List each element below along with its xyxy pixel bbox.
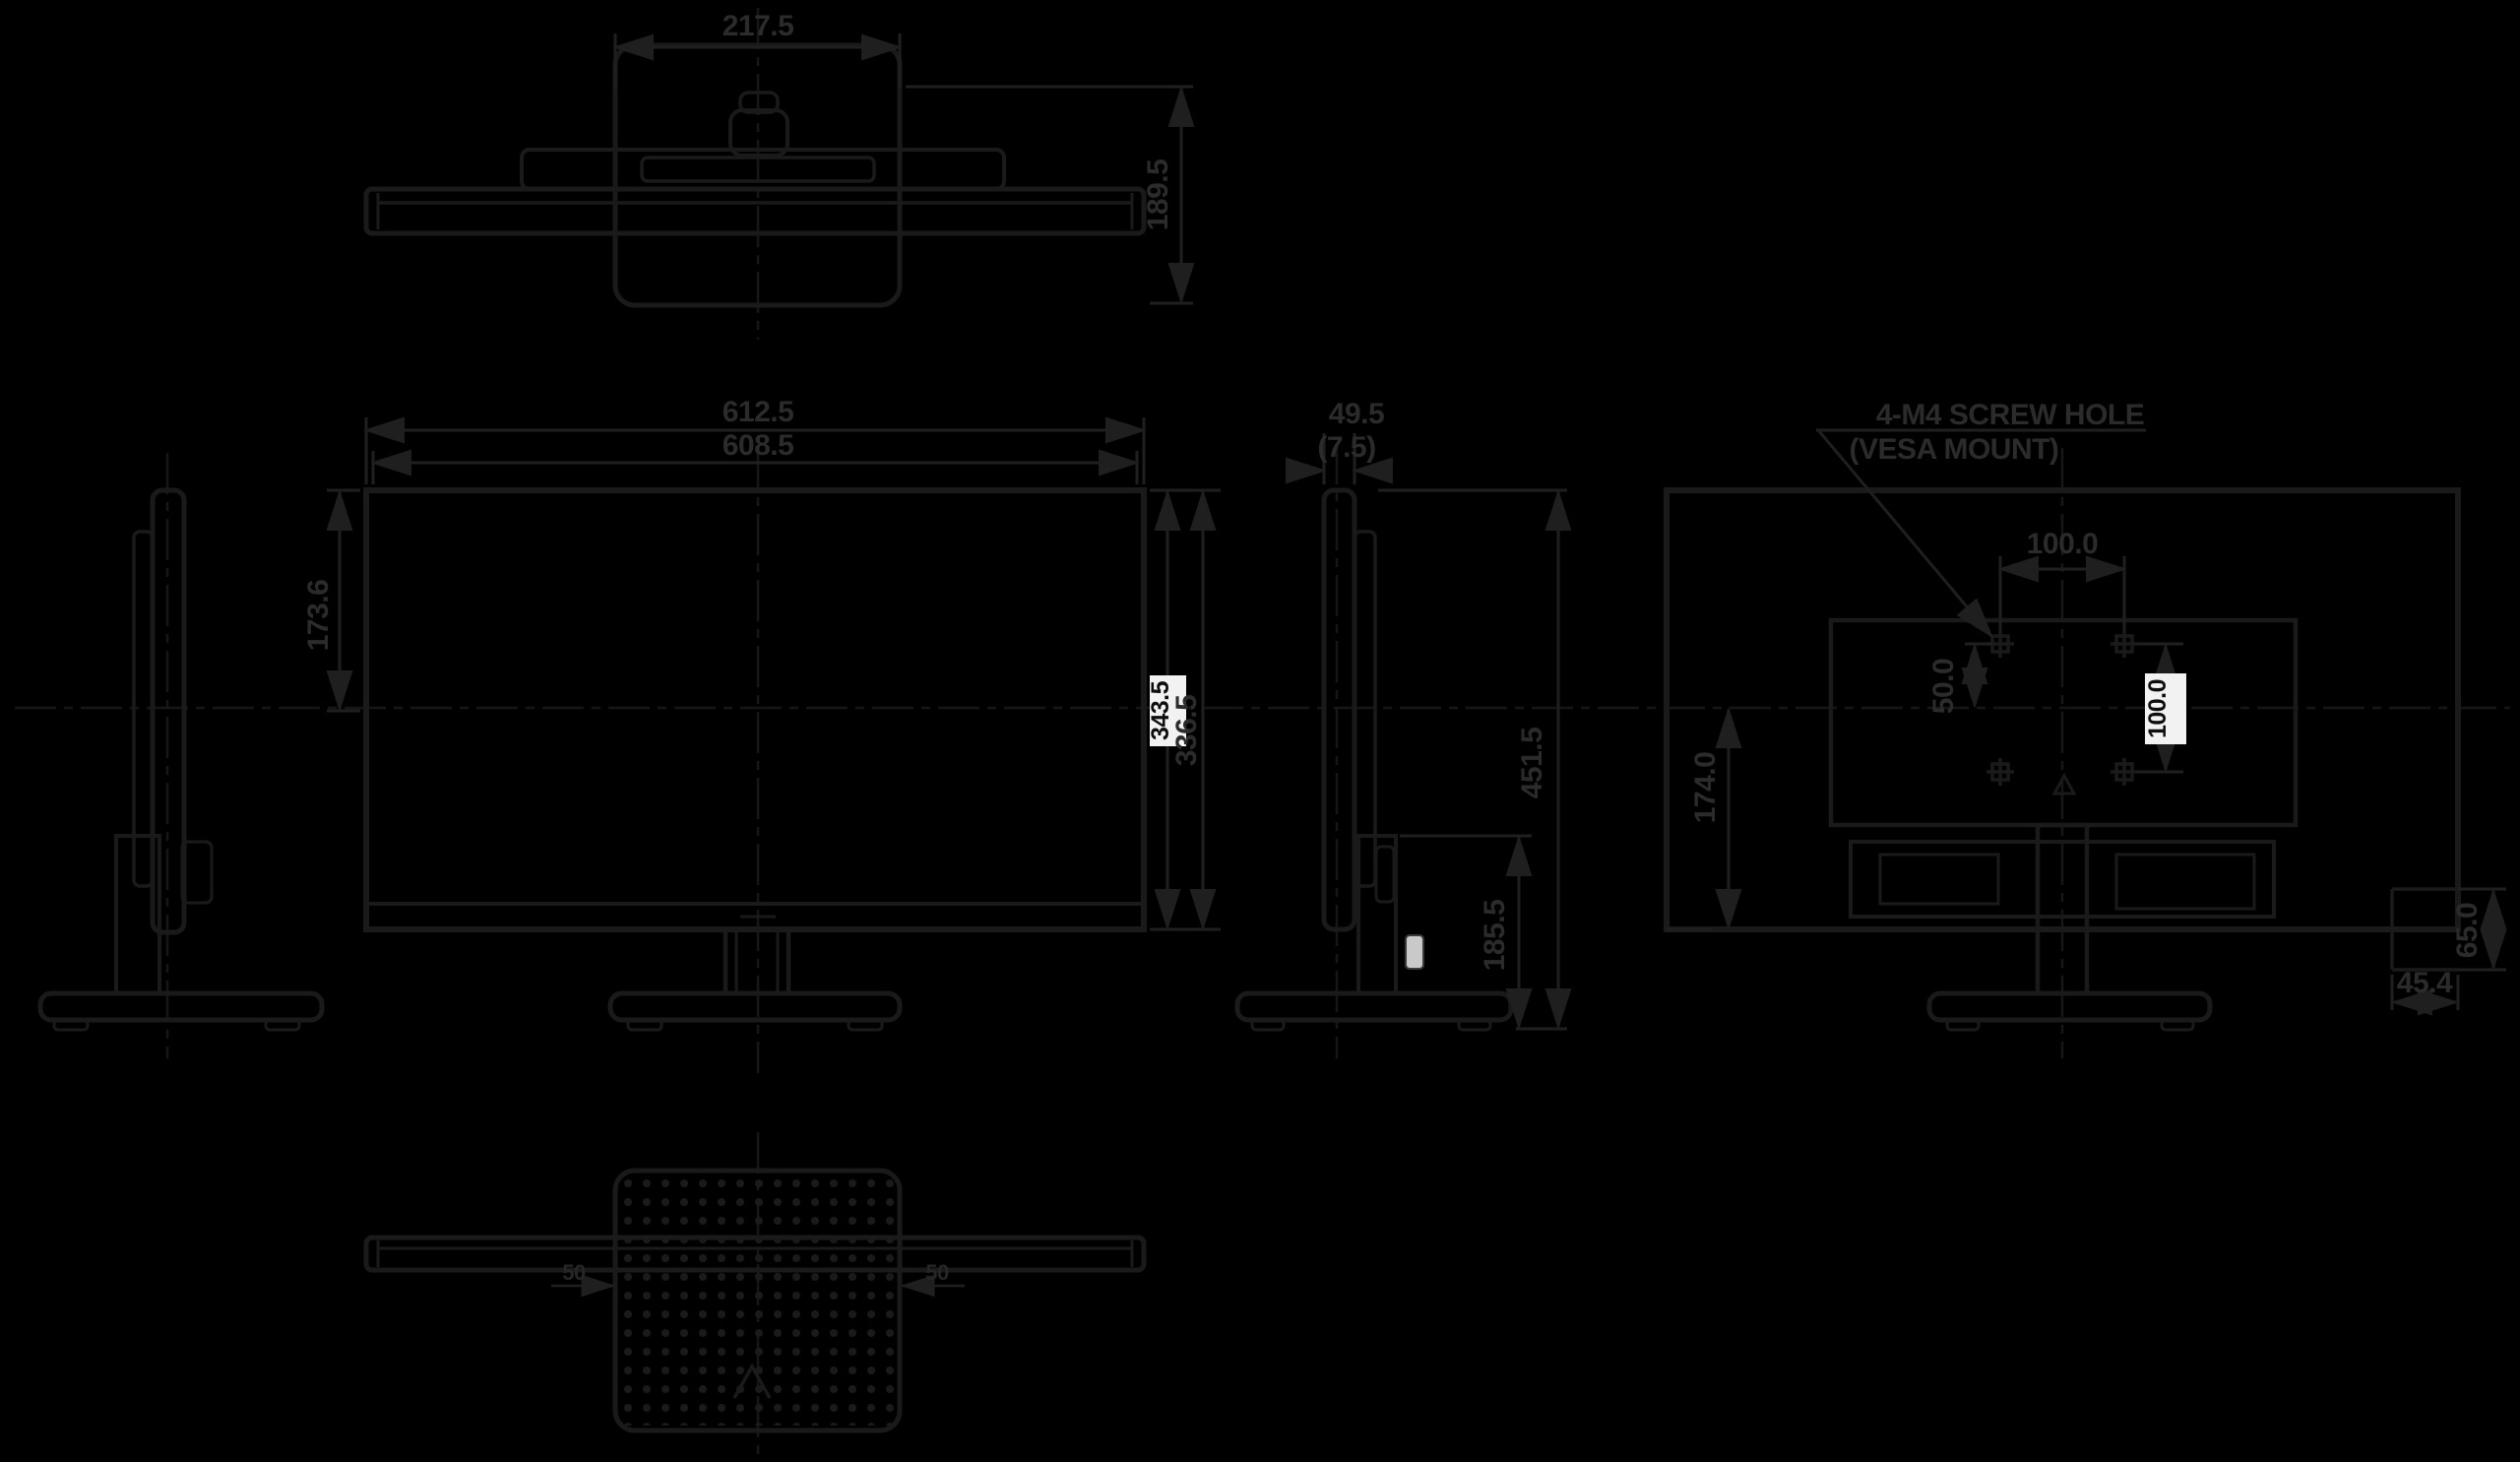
vesa-note-line1: 4-M4 SCREW HOLE	[1876, 399, 2145, 431]
dim-rear-corner-vertical: 65.0	[2451, 903, 2484, 958]
dim-front-inner-width: 608.5	[723, 429, 794, 462]
bottom-view-dot-grid	[622, 1177, 895, 1426]
dim-vesa-vertical-boxed: 100.0	[2144, 679, 2172, 738]
dim-front-outer-width: 612.5	[723, 396, 794, 428]
dim-rear-corner-horizontal: 45.4	[2397, 967, 2453, 999]
dim-bottom-left: 50	[562, 1260, 586, 1285]
dim-rear-lower-height: 174.0	[1689, 752, 1722, 824]
right-side-release-latch	[1406, 935, 1423, 969]
dim-bottom-right: 50	[925, 1260, 949, 1285]
dim-top-base-width: 217.5	[723, 10, 794, 42]
vesa-note-line2: (VESA MOUNT)	[1850, 433, 2059, 466]
dim-vesa-horizontal: 100.0	[2027, 528, 2099, 560]
dim-vesa-offset: 50.0	[1927, 659, 1960, 714]
dim-front-height-secondary: 336.5	[1170, 695, 1203, 767]
dim-side-total-height: 451.5	[1516, 728, 1548, 799]
dim-top-depth: 189.5	[1142, 159, 1174, 231]
dim-front-upper-height: 173.6	[302, 580, 335, 652]
dim-side-stand-height: 185.5	[1479, 900, 1511, 972]
dimensional-drawing-canvas: 217.5 189.5 612.5 608.5	[0, 0, 2520, 1462]
dim-side-thickness: 49.5	[1329, 398, 1384, 430]
dim-side-bezel: (7.5)	[1317, 431, 1375, 464]
